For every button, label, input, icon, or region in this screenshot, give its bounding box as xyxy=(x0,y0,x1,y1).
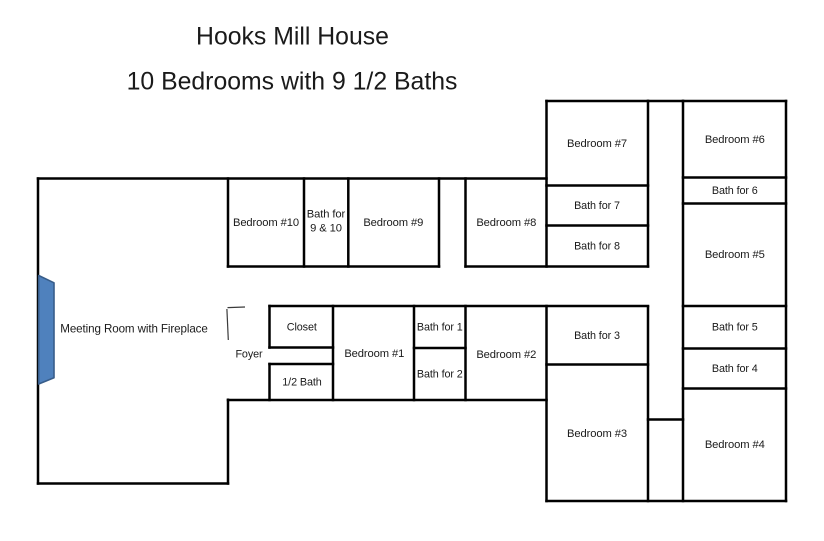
svg-text:Bedroom #6: Bedroom #6 xyxy=(705,134,765,146)
svg-text:Bath for 7: Bath for 7 xyxy=(574,200,620,212)
svg-text:Bath for 5: Bath for 5 xyxy=(712,322,758,334)
svg-text:Bedroom #4: Bedroom #4 xyxy=(705,439,765,451)
svg-text:Bath for 2: Bath for 2 xyxy=(417,368,463,380)
svg-text:Bedroom #8: Bedroom #8 xyxy=(476,217,536,229)
svg-text:Bedroom #2: Bedroom #2 xyxy=(476,349,536,361)
svg-text:Bath for 3: Bath for 3 xyxy=(574,330,620,342)
svg-text:9 & 10: 9 & 10 xyxy=(310,223,342,235)
svg-text:Bedroom #1: Bedroom #1 xyxy=(344,348,404,360)
svg-text:Foyer: Foyer xyxy=(235,348,263,360)
svg-text:Bedroom #5: Bedroom #5 xyxy=(705,249,765,261)
svg-text:Bath for 8: Bath for 8 xyxy=(574,241,620,253)
svg-text:Bedroom #7: Bedroom #7 xyxy=(567,138,627,150)
svg-text:Bedroom #10: Bedroom #10 xyxy=(233,217,299,229)
svg-text:Bath for: Bath for xyxy=(307,209,346,221)
svg-text:10 Bedrooms with 9 1/2 Baths: 10 Bedrooms with 9 1/2 Baths xyxy=(127,69,458,96)
svg-text:Bedroom #3: Bedroom #3 xyxy=(567,428,627,440)
svg-text:Bath for 6: Bath for 6 xyxy=(712,185,758,197)
svg-text:Bath for 1: Bath for 1 xyxy=(417,322,463,334)
svg-text:Meeting Room with Fireplace: Meeting Room with Fireplace xyxy=(60,323,207,336)
svg-text:1/2 Bath: 1/2 Bath xyxy=(282,377,322,389)
svg-text:Hooks Mill House: Hooks Mill House xyxy=(196,24,389,51)
svg-text:Bath for 4: Bath for 4 xyxy=(712,363,758,375)
svg-text:Closet: Closet xyxy=(287,322,317,334)
svg-text:Bedroom #9: Bedroom #9 xyxy=(363,217,423,229)
